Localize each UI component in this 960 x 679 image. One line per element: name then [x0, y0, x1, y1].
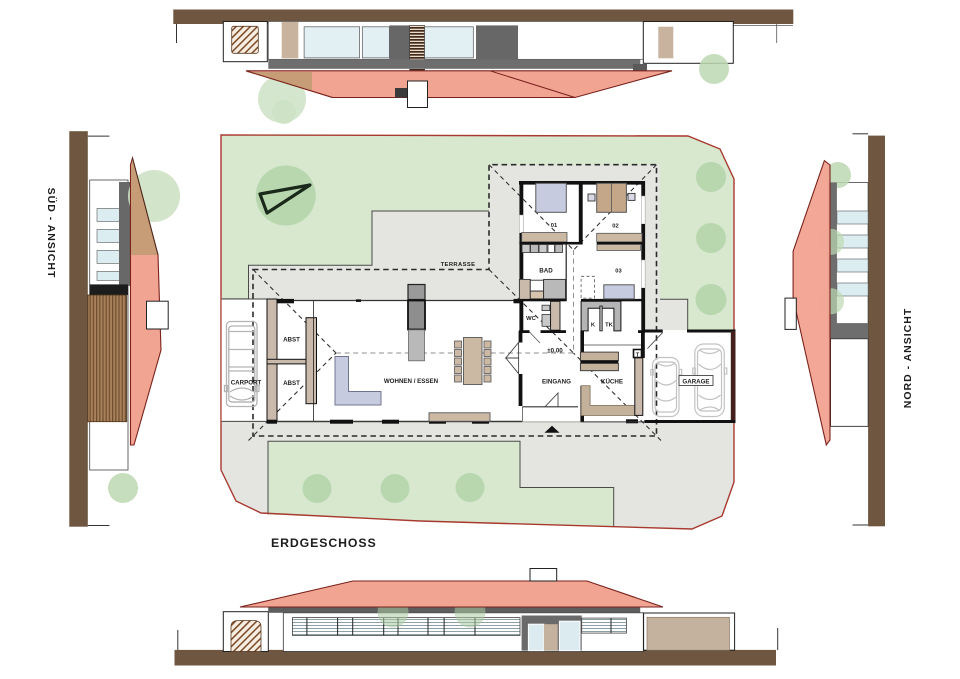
svg-text:TK: TK	[605, 323, 614, 329]
svg-text:BAD: BAD	[539, 268, 553, 275]
svg-text:03: 03	[615, 269, 622, 275]
svg-text:WC: WC	[526, 316, 536, 322]
svg-text:ABST: ABST	[283, 337, 300, 344]
svg-text:±0.00: ±0.00	[547, 348, 563, 355]
svg-text:SÜD - ANSICHT: SÜD - ANSICHT	[45, 188, 58, 279]
svg-text:ABST: ABST	[283, 380, 300, 387]
svg-text:GARAGE: GARAGE	[682, 379, 709, 386]
svg-text:TERRASSE: TERRASSE	[441, 262, 476, 268]
svg-text:KÜCHE: KÜCHE	[601, 379, 623, 386]
svg-text:02: 02	[612, 224, 618, 230]
svg-text:CARPORT: CARPORT	[231, 380, 262, 387]
svg-text:WOHNEN / ESSEN: WOHNEN / ESSEN	[384, 378, 439, 385]
svg-text:ERDGESCHOSS: ERDGESCHOSS	[271, 536, 377, 550]
svg-text:EINGANG: EINGANG	[542, 379, 571, 386]
svg-text:01: 01	[551, 223, 558, 229]
svg-text:T: T	[636, 353, 640, 359]
svg-text:NORD - ANSICHT: NORD - ANSICHT	[902, 308, 914, 409]
